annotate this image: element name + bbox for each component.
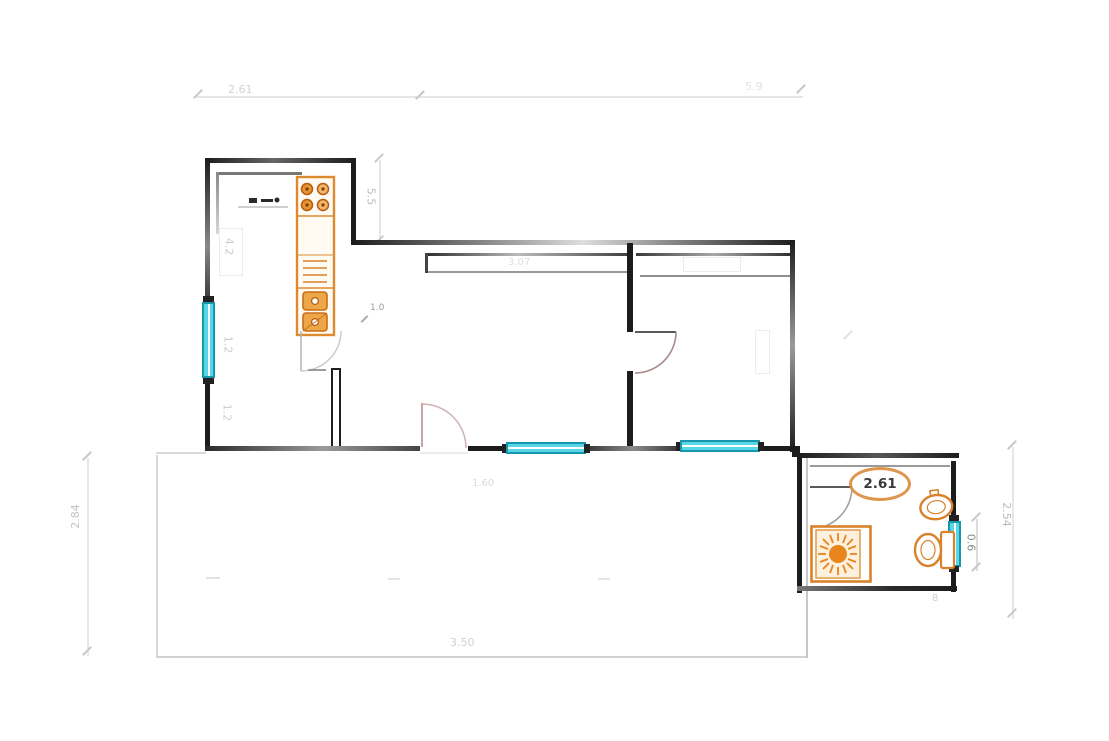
- terrace-left: [156, 455, 158, 658]
- wall-living-top-inner: [428, 271, 632, 273]
- wall-kitchen-right: [351, 158, 356, 245]
- bath-width-value: 2.61: [863, 476, 896, 492]
- dim-tick: [796, 84, 806, 94]
- dim-label-right: 2.54: [1000, 502, 1013, 527]
- terrace-bottom: [156, 656, 808, 658]
- wall-bath-bottom: [797, 586, 957, 591]
- wall-kitchen-inner-left: [216, 172, 219, 234]
- wall-bottom-3: [584, 446, 682, 451]
- terrace-mark: [388, 578, 400, 580]
- wall-partition-lower: [627, 371, 633, 450]
- dim-label-top-left: 2.61: [228, 83, 253, 96]
- bath-width-circled-label: 2.61: [849, 467, 911, 501]
- dimension-line-left: [87, 458, 89, 656]
- wall-kitchen-left-upper: [205, 158, 210, 305]
- wall-main-top: [352, 240, 795, 245]
- dimension-line-right: [1012, 447, 1014, 619]
- wall-bath-top: [797, 453, 959, 458]
- dim-label-living-wall: 3.07: [508, 257, 530, 268]
- dim-label-kitchen-c: 1.2: [220, 404, 233, 422]
- kitchen-window: [202, 302, 215, 378]
- wall-kitchen-top: [205, 158, 356, 163]
- bath-floor-mark: 8: [932, 593, 938, 604]
- dim-label-living-floor: 1.60: [472, 478, 494, 489]
- wall-bottom-1: [205, 446, 420, 451]
- wash-basin-icon: [914, 485, 960, 525]
- wall-bath-left: [797, 453, 802, 593]
- wall-main-right: [790, 240, 795, 452]
- dim-tick: [361, 315, 369, 323]
- terrace-mark: [598, 578, 610, 580]
- door-threshold: [420, 452, 468, 454]
- door-sill-mark: [308, 369, 326, 371]
- dim-label-kitchen-side: 5.5: [364, 188, 377, 206]
- dim-label-terrace: 3.50: [450, 636, 475, 649]
- dim-label-bath-window: 0.6: [964, 534, 977, 552]
- bedroom-wall-recess: [683, 257, 741, 272]
- window-cap: [584, 444, 590, 453]
- dim-tick: [843, 330, 853, 340]
- dim-label-hall: 1.0: [370, 303, 384, 313]
- entry-door-arc: [420, 401, 470, 451]
- wall-partition-upper: [627, 243, 633, 332]
- kitchen-door-arc: [301, 331, 341, 371]
- dimension-line-top: [197, 96, 803, 98]
- dim-label-left: 2.84: [69, 504, 82, 529]
- bedroom-radiator-outline: [755, 330, 770, 374]
- window-cap: [758, 442, 764, 451]
- terrace-mark: [206, 577, 220, 579]
- wall-living-top-outer: [425, 253, 632, 256]
- wall-kitchen-left-lower: [205, 377, 210, 451]
- shower-icon: [810, 525, 872, 583]
- window-cap: [203, 378, 214, 384]
- wall-kitchen-hall: [331, 368, 341, 448]
- dim-label-kitchen-b: 1.2: [221, 336, 234, 354]
- wall-bedroom-top-inner: [640, 275, 790, 277]
- wall-bedroom-top-outer: [636, 253, 792, 256]
- wall-living-top-cap: [425, 253, 428, 273]
- terrace-top-extension: [156, 452, 206, 454]
- dim-label-kitchen-a: 4.2: [222, 238, 235, 256]
- dim-tick: [415, 90, 425, 100]
- toilet-icon: [912, 528, 958, 572]
- dim-label-top-right: 5.9: [745, 80, 763, 93]
- floor-plan-canvas: 2.61 5.9 2.84 5.5: [0, 0, 1109, 741]
- wall-kitchen-inner-top: [216, 172, 302, 175]
- bedroom-window: [680, 440, 760, 452]
- counter-edge-line: [238, 206, 288, 208]
- kitchen-counter: [295, 175, 337, 339]
- bedroom-door-arc: [630, 328, 680, 378]
- living-room-window: [506, 442, 586, 454]
- dimension-line-kitchen: [379, 160, 381, 244]
